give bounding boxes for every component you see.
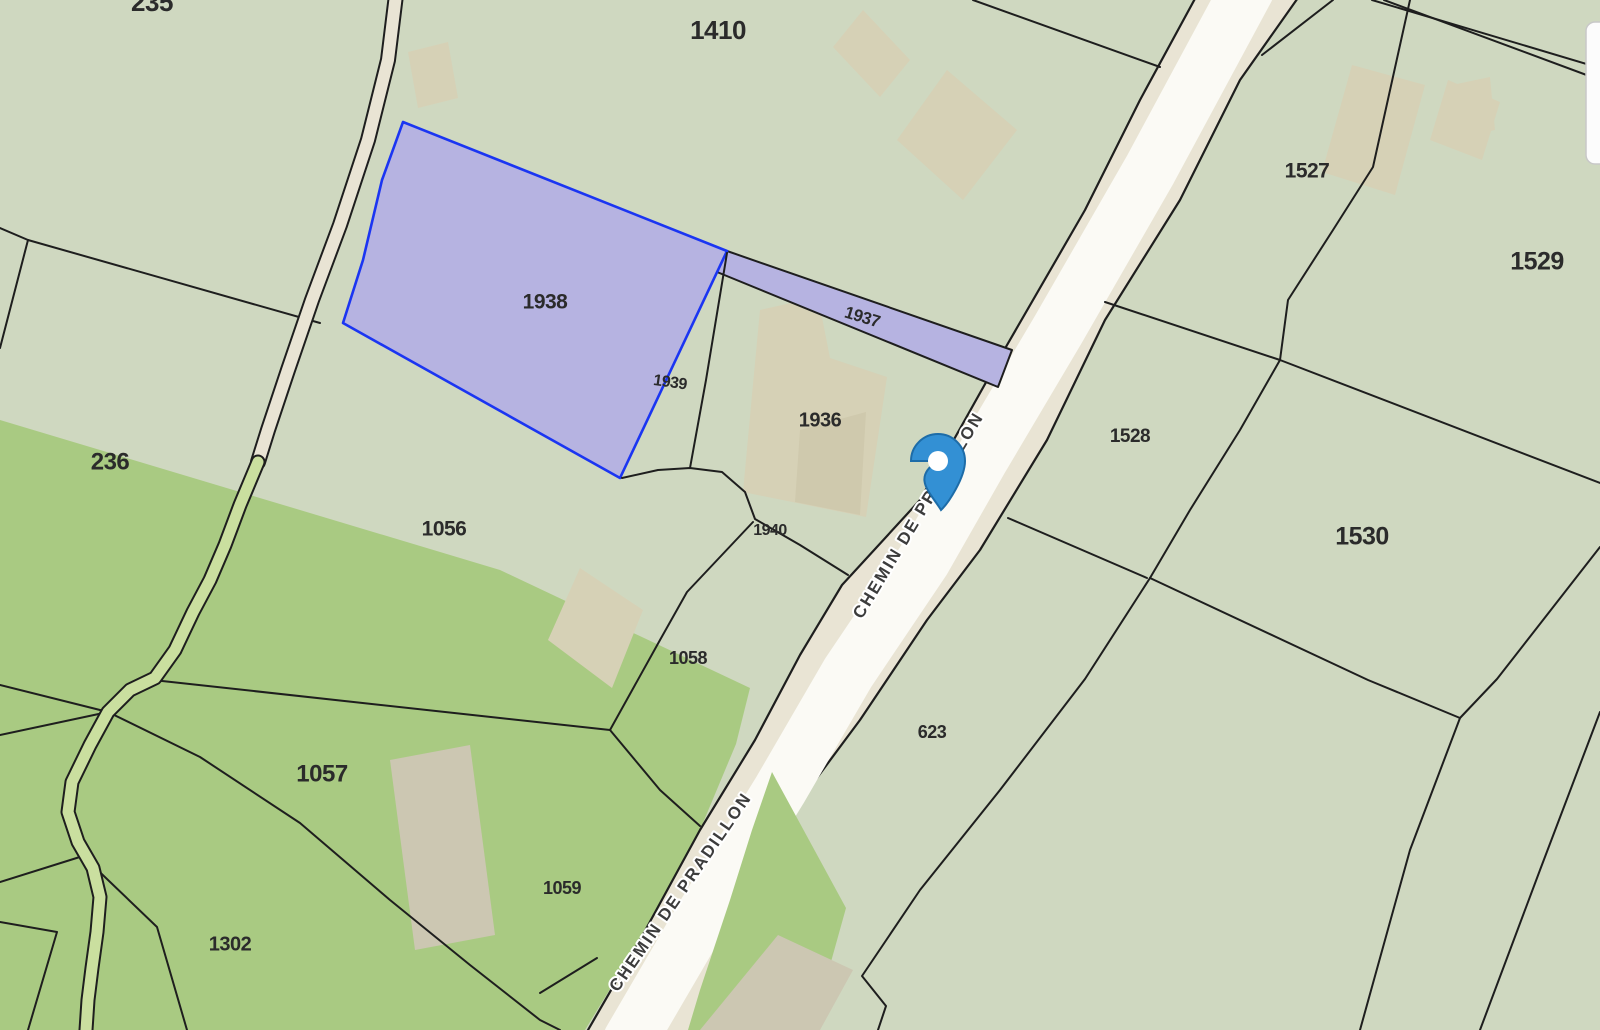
pin-hole [928, 451, 948, 471]
parcel-label-1059: 1059 [543, 878, 582, 898]
parcel-label-623: 623 [918, 722, 947, 742]
parcel-label-1056: 1056 [422, 518, 467, 541]
parcel-label-235: 235 [131, 0, 173, 17]
parcel-label-1529: 1529 [1510, 248, 1564, 276]
parcel-label-1936: 1936 [799, 409, 842, 431]
parcel-label-1938: 1938 [523, 291, 569, 314]
parcel-label-1940: 1940 [753, 522, 787, 539]
building-ne-corner [1452, 77, 1495, 138]
parcel-label-1410: 1410 [690, 15, 746, 45]
parcel-label-1527: 1527 [1285, 160, 1330, 183]
parcel-label-1528: 1528 [1110, 426, 1150, 447]
map-canvas[interactable]: CHEMIN DE PRADILLONCHEMIN DE PRADILLON23… [0, 0, 1600, 1030]
parcel-label-1530: 1530 [1335, 523, 1389, 551]
map-viewport[interactable]: CHEMIN DE PRADILLONCHEMIN DE PRADILLON23… [0, 0, 1600, 1030]
side-panel[interactable] [1586, 22, 1600, 164]
parcel-label-236: 236 [91, 448, 130, 475]
parcel-label-1302: 1302 [209, 933, 252, 955]
parcel-label-1057: 1057 [296, 760, 348, 787]
parcel-label-1058: 1058 [669, 648, 708, 668]
